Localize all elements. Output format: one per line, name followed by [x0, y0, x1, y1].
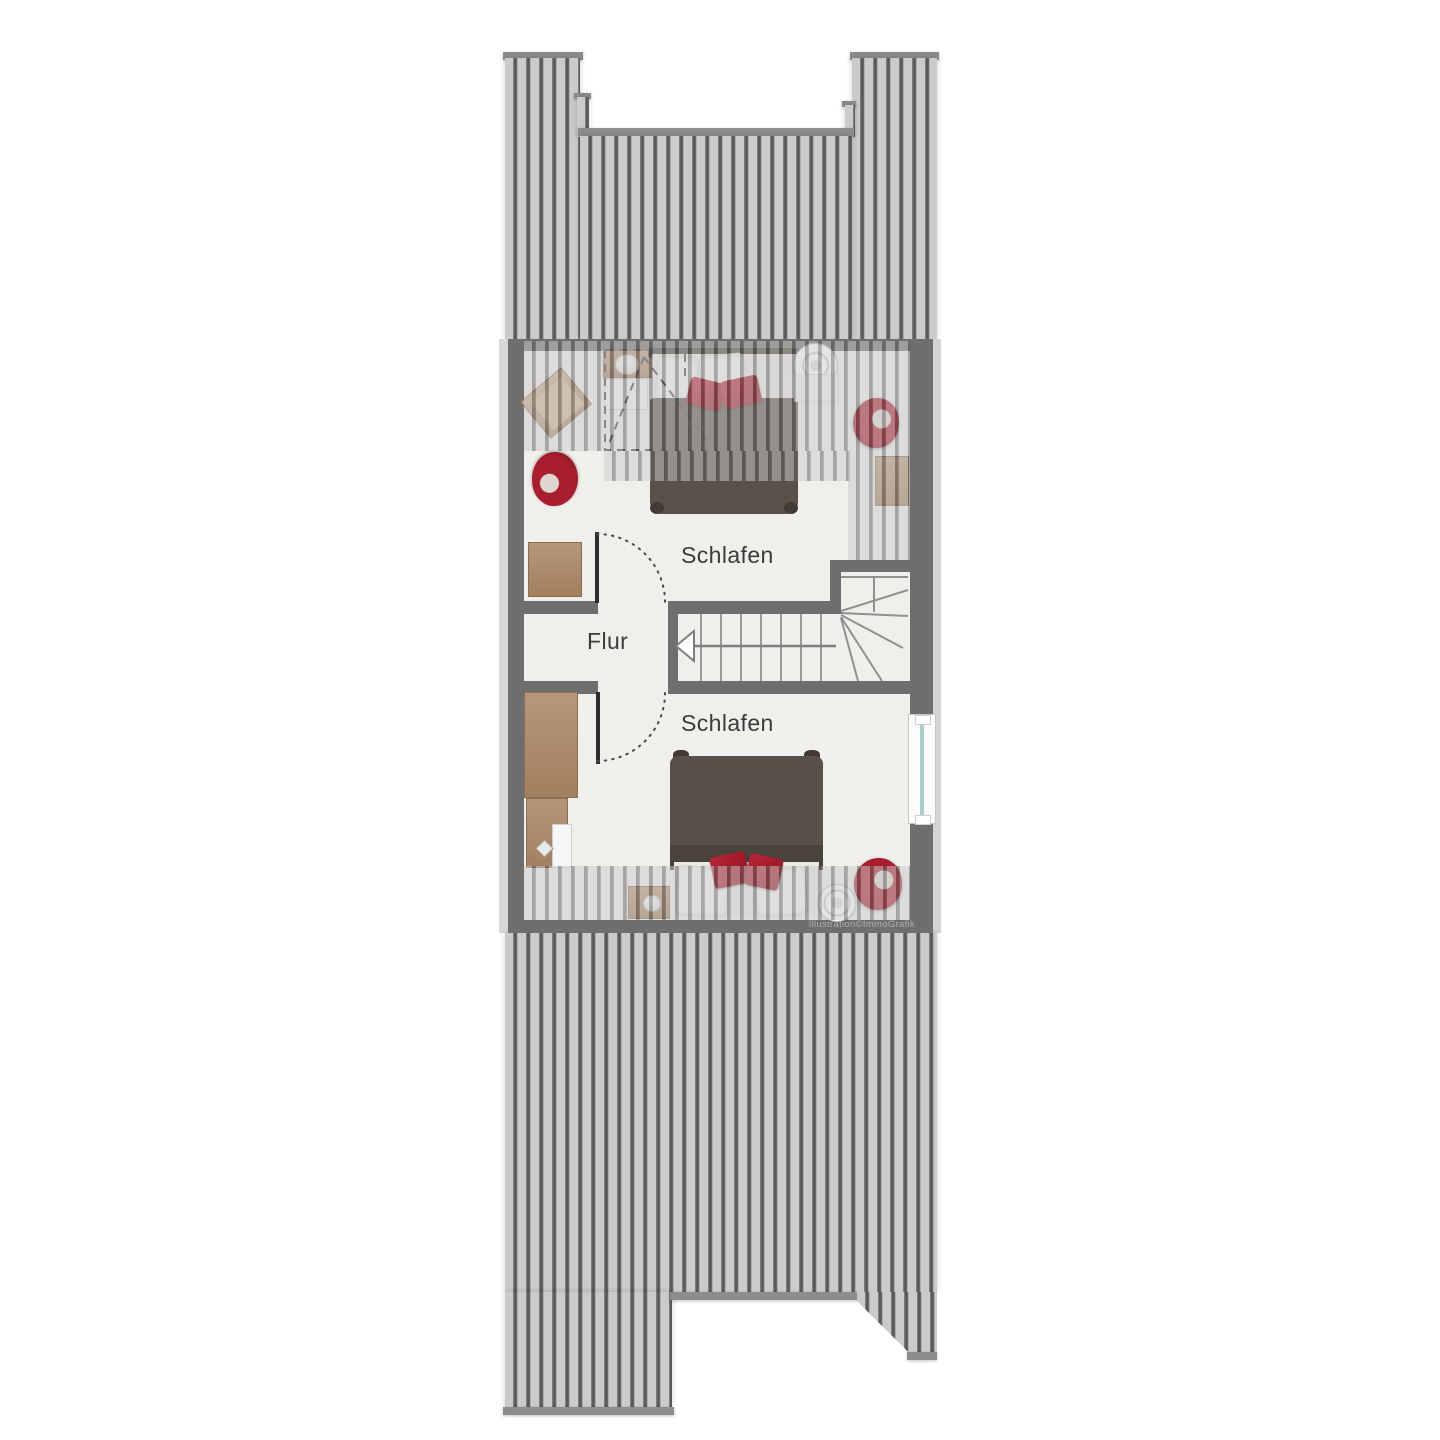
window-right	[908, 714, 936, 824]
roof-top-center	[580, 136, 852, 339]
roof-top-right-tower	[852, 58, 937, 339]
bowl-nightstand-bottom-left	[643, 895, 661, 912]
bed-top-duvet	[650, 398, 798, 514]
wall-stair-top	[668, 601, 840, 614]
room-label-hallway: Flur	[587, 628, 628, 655]
watermark-text: Illustration©ImmoGrafik	[785, 919, 915, 930]
bed-top	[648, 348, 800, 514]
wall-winder-stub	[830, 560, 841, 614]
wall-winder-top	[830, 560, 910, 572]
bed-top-foot-knob-left	[650, 502, 664, 514]
door-leaf-bedroom-bottom	[596, 692, 600, 764]
bed-bottom	[670, 750, 823, 920]
roof-bottom-left-ext	[505, 1292, 672, 1407]
sideboard-upper-left	[528, 542, 582, 597]
window-tab-top	[915, 715, 931, 725]
closet-door-panel	[552, 824, 572, 868]
side-table-right	[875, 456, 909, 506]
window-glass-line	[920, 723, 924, 815]
wall-right-upper	[910, 351, 933, 714]
roof-eave-right	[933, 339, 941, 933]
roof-bottom-right-ext	[857, 1292, 937, 1352]
roof-eave-left	[499, 339, 508, 933]
bed-bottom-cushion-right	[744, 853, 784, 891]
armchair-top-right	[853, 398, 899, 448]
side-table-lamp-bottom-right	[818, 884, 856, 922]
wardrobe-lower-left-tall	[524, 692, 578, 798]
armchair-top-left	[532, 452, 578, 506]
bed-top-foot-knob-right	[784, 502, 798, 514]
room-label-bedroom-top: Schlafen	[681, 542, 774, 569]
wall-hall-top	[508, 601, 598, 614]
roof-cap-bottom-right	[907, 1352, 937, 1360]
bowl-on-shelf	[615, 354, 639, 375]
roof-cap-bottom-left	[503, 1407, 674, 1415]
wall-right-lower	[910, 824, 933, 920]
side-table-base-top-right	[794, 374, 839, 402]
floor-plan: Schlafen Flur Schlafen Illustration©Immo…	[0, 0, 1440, 1440]
roof-bottom-main	[505, 933, 937, 1292]
wall-stair-bottom	[668, 681, 910, 694]
window-tab-bottom	[915, 815, 931, 825]
room-label-bedroom-bottom: Schlafen	[681, 710, 774, 737]
armchair-bottom-right	[854, 858, 902, 910]
roof-top-left-tower	[505, 58, 580, 339]
roof-cap-top-center	[578, 128, 854, 136]
roof-cap-bottom-center	[670, 1292, 859, 1300]
door-leaf-bedroom-top	[595, 532, 599, 603]
nightstand-top-left	[604, 378, 648, 410]
wall-left	[508, 339, 524, 933]
